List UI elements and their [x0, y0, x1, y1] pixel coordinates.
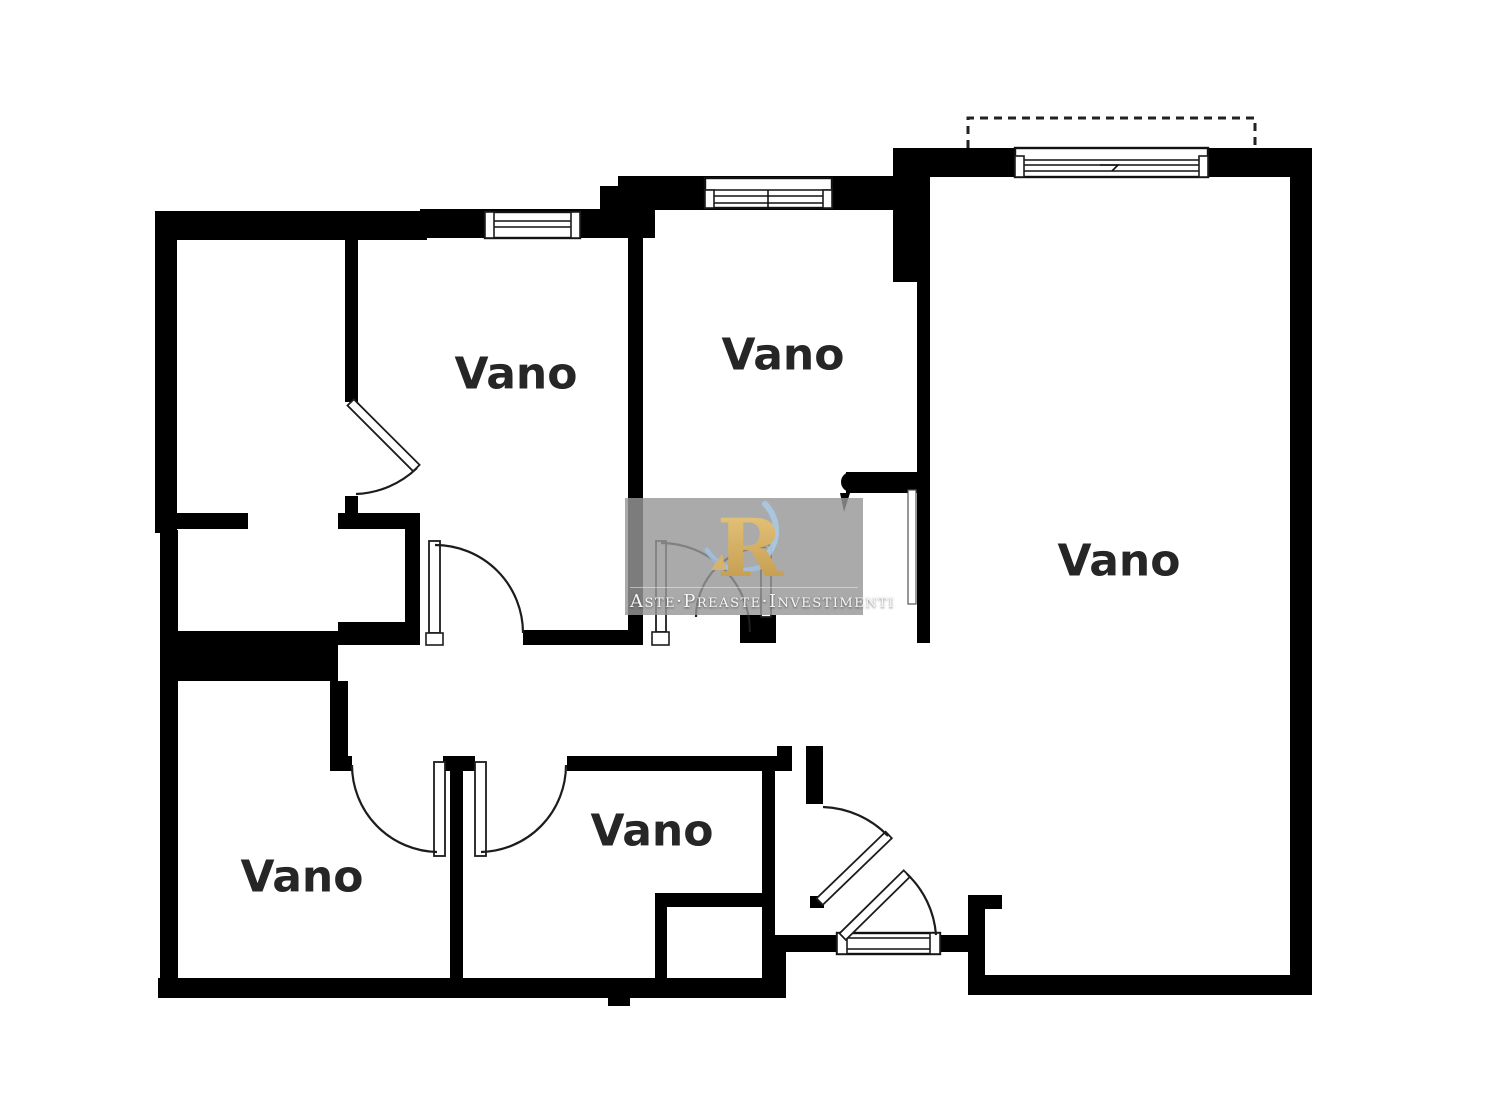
room-label: Vano: [241, 852, 364, 903]
room-label: Vano: [455, 349, 578, 400]
logo-letter: R: [717, 501, 784, 590]
window-symbol: [1015, 148, 1208, 177]
entry-threshold: [837, 933, 940, 954]
window-symbol: [705, 178, 832, 208]
room-label: Vano: [591, 806, 714, 857]
agency-tagline: Aste·Preaste·Investimenti: [630, 587, 858, 612]
window-symbol: [485, 212, 580, 238]
agency-logo-icon: R: [625, 498, 863, 590]
balcony-outline: [968, 118, 1255, 148]
room-label: Vano: [1058, 536, 1181, 587]
room-label: Vano: [722, 330, 845, 381]
agency-watermark: R Aste·Preaste·Investimenti: [625, 498, 863, 615]
floor-plan-page: Vano Vano Vano Vano Vano R Aste·Preaste·…: [0, 0, 1500, 1118]
